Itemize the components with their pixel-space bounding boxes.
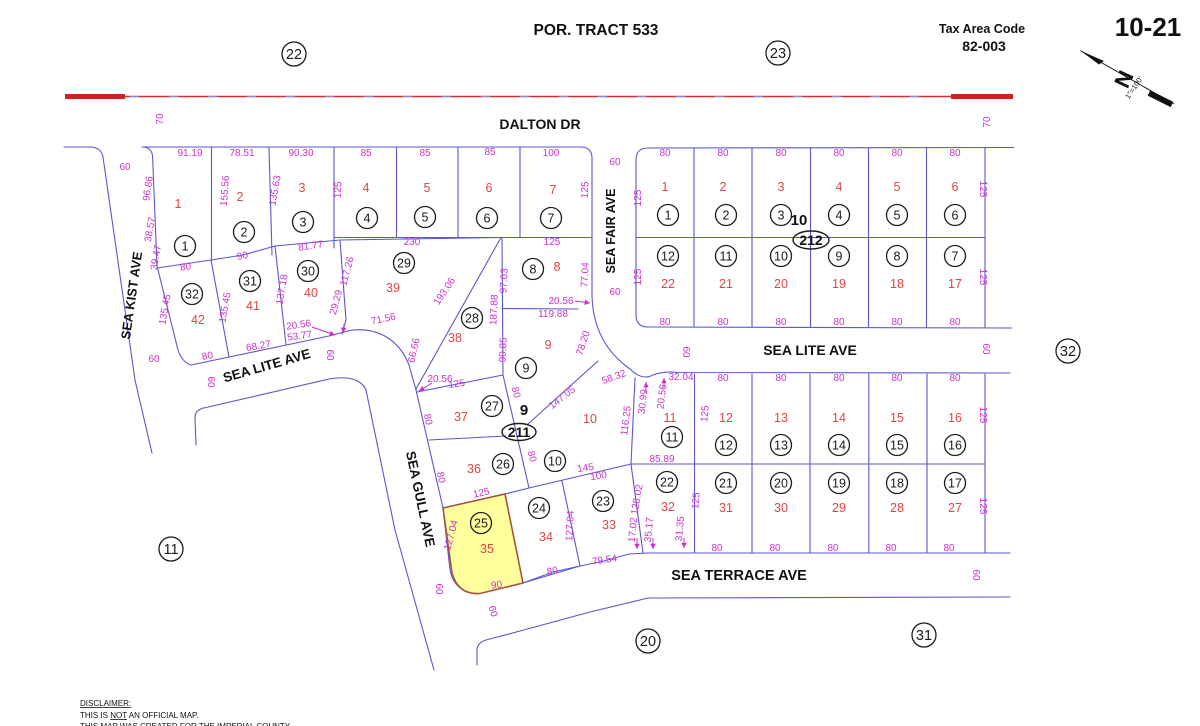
svg-text:10: 10 <box>583 412 597 426</box>
svg-text:16: 16 <box>948 411 962 425</box>
svg-text:20: 20 <box>774 477 788 491</box>
svg-text:125: 125 <box>690 492 702 510</box>
svg-text:31.35: 31.35 <box>674 515 687 541</box>
svg-text:60: 60 <box>148 354 160 365</box>
svg-text:125: 125 <box>977 498 988 515</box>
svg-text:33: 33 <box>602 518 616 532</box>
svg-text:11: 11 <box>664 411 677 425</box>
svg-text:80: 80 <box>885 543 897 554</box>
svg-text:60: 60 <box>119 162 131 173</box>
svg-text:60: 60 <box>680 346 691 358</box>
svg-text:30: 30 <box>774 501 788 515</box>
svg-text:3: 3 <box>778 180 785 194</box>
svg-text:POR. TRACT 533: POR. TRACT 533 <box>534 22 659 39</box>
svg-text:212: 212 <box>799 232 823 248</box>
svg-text:80: 80 <box>833 373 845 384</box>
svg-text:38: 38 <box>448 331 462 345</box>
svg-text:9: 9 <box>523 362 530 376</box>
svg-text:10: 10 <box>548 455 562 469</box>
svg-text:80: 80 <box>711 543 723 554</box>
svg-text:32: 32 <box>661 500 675 514</box>
svg-text:60: 60 <box>609 287 621 298</box>
svg-text:9: 9 <box>836 250 843 264</box>
svg-text:13: 13 <box>774 439 788 453</box>
svg-text:80: 80 <box>833 148 845 159</box>
svg-text:97.03: 97.03 <box>498 268 510 294</box>
svg-text:13: 13 <box>774 411 788 425</box>
svg-text:34: 34 <box>539 530 553 544</box>
svg-text:125: 125 <box>633 189 644 206</box>
svg-text:5: 5 <box>422 211 429 225</box>
svg-text:80: 80 <box>659 317 671 328</box>
svg-text:35: 35 <box>480 542 494 556</box>
svg-text:23: 23 <box>770 46 786 62</box>
svg-text:Tax Area Code: Tax Area Code <box>939 22 1025 36</box>
svg-text:1: 1 <box>175 197 182 211</box>
svg-text:17.02: 17.02 <box>627 516 640 542</box>
svg-text:4: 4 <box>363 181 370 195</box>
svg-text:60: 60 <box>980 343 991 355</box>
svg-text:4: 4 <box>836 209 843 223</box>
svg-text:11: 11 <box>163 542 178 558</box>
svg-text:80: 80 <box>891 317 903 328</box>
svg-text:37: 37 <box>454 410 468 424</box>
svg-text:60: 60 <box>970 569 981 581</box>
svg-text:80: 80 <box>769 543 781 554</box>
svg-text:211: 211 <box>508 424 531 440</box>
svg-text:7: 7 <box>952 250 959 264</box>
svg-text:1: 1 <box>665 209 672 223</box>
svg-text:80: 80 <box>949 373 961 384</box>
svg-text:DISCLAIMER:: DISCLAIMER: <box>80 699 131 708</box>
svg-text:DALTON DR: DALTON DR <box>499 116 580 132</box>
svg-text:230: 230 <box>404 237 421 248</box>
svg-text:10-21: 10-21 <box>1115 12 1182 42</box>
svg-text:29: 29 <box>397 257 411 271</box>
svg-text:80: 80 <box>717 148 729 159</box>
svg-text:85.89: 85.89 <box>649 454 674 465</box>
svg-text:2: 2 <box>241 226 248 240</box>
svg-text:70: 70 <box>982 116 993 128</box>
svg-text:22: 22 <box>286 47 302 63</box>
svg-text:12: 12 <box>719 439 733 453</box>
svg-text:32.04: 32.04 <box>668 372 693 383</box>
svg-text:7: 7 <box>550 183 557 197</box>
svg-text:80: 80 <box>827 543 839 554</box>
svg-text:15: 15 <box>890 411 904 425</box>
svg-text:8: 8 <box>530 263 537 277</box>
svg-text:155.56: 155.56 <box>219 175 232 207</box>
svg-text:20.56: 20.56 <box>548 296 573 307</box>
svg-text:125: 125 <box>699 405 711 423</box>
svg-text:78.51: 78.51 <box>229 148 254 159</box>
svg-text:2: 2 <box>720 180 727 194</box>
svg-text:11: 11 <box>666 431 679 445</box>
svg-text:80: 80 <box>891 148 903 159</box>
svg-text:THIS IS NOT AN OFFICIAL MAP.: THIS IS NOT AN OFFICIAL MAP. <box>80 711 199 720</box>
svg-text:6: 6 <box>952 180 959 194</box>
svg-text:60: 60 <box>433 583 444 595</box>
svg-text:39: 39 <box>386 281 400 295</box>
svg-text:31: 31 <box>916 628 932 644</box>
svg-text:187.88: 187.88 <box>488 294 501 326</box>
svg-text:60: 60 <box>324 349 335 361</box>
svg-text:80: 80 <box>833 317 845 328</box>
svg-text:12: 12 <box>719 411 733 425</box>
svg-text:80: 80 <box>949 148 961 159</box>
svg-text:125: 125 <box>977 181 988 198</box>
svg-text:90.30: 90.30 <box>288 148 313 159</box>
svg-text:28: 28 <box>465 312 479 326</box>
svg-text:91.19: 91.19 <box>177 148 202 159</box>
svg-text:25: 25 <box>474 517 488 531</box>
svg-text:14: 14 <box>832 411 846 425</box>
svg-text:4: 4 <box>364 212 371 226</box>
svg-text:19: 19 <box>832 277 846 291</box>
svg-text:125: 125 <box>580 181 592 199</box>
svg-text:80: 80 <box>775 148 787 159</box>
svg-text:32: 32 <box>185 288 199 302</box>
svg-text:36: 36 <box>467 462 481 476</box>
svg-text:12: 12 <box>661 250 675 264</box>
svg-text:119.88: 119.88 <box>538 309 568 320</box>
svg-text:17: 17 <box>948 477 962 491</box>
svg-text:42: 42 <box>191 313 205 327</box>
svg-text:85: 85 <box>484 147 496 158</box>
svg-text:SEA TERRACE AVE: SEA TERRACE AVE <box>671 568 807 584</box>
svg-text:125: 125 <box>977 269 988 286</box>
svg-text:127.04: 127.04 <box>564 510 577 542</box>
svg-text:80: 80 <box>775 317 787 328</box>
svg-text:80: 80 <box>659 148 671 159</box>
svg-text:20: 20 <box>774 277 788 291</box>
svg-text:18: 18 <box>890 277 904 291</box>
svg-text:125: 125 <box>977 407 988 424</box>
svg-text:22: 22 <box>661 277 675 291</box>
svg-text:8: 8 <box>894 250 901 264</box>
svg-text:6: 6 <box>486 181 493 195</box>
svg-text:80: 80 <box>775 373 787 384</box>
svg-text:35.17: 35.17 <box>643 516 656 542</box>
svg-text:85: 85 <box>419 148 431 159</box>
svg-text:4: 4 <box>836 180 843 194</box>
svg-text:2: 2 <box>723 209 730 223</box>
svg-text:90: 90 <box>490 579 503 592</box>
svg-text:5: 5 <box>424 181 431 195</box>
svg-text:9: 9 <box>520 402 528 419</box>
svg-text:85: 85 <box>360 148 372 159</box>
svg-text:SEA LITE AVE: SEA LITE AVE <box>763 342 857 358</box>
svg-text:14: 14 <box>832 439 846 453</box>
svg-text:90.85: 90.85 <box>497 337 509 363</box>
svg-text:27: 27 <box>485 400 499 414</box>
svg-text:SEA FAIR AVE: SEA FAIR AVE <box>604 189 618 274</box>
svg-text:125: 125 <box>633 268 644 285</box>
svg-text:11: 11 <box>720 250 733 264</box>
svg-text:31: 31 <box>719 501 733 515</box>
svg-text:100: 100 <box>543 148 560 159</box>
svg-text:70: 70 <box>155 113 166 125</box>
svg-text:19: 19 <box>832 477 846 491</box>
svg-text:82-003: 82-003 <box>962 38 1006 54</box>
svg-text:5: 5 <box>894 209 901 223</box>
svg-text:10: 10 <box>774 250 788 264</box>
svg-text:60: 60 <box>205 376 216 388</box>
svg-text:24: 24 <box>532 502 546 516</box>
svg-text:THIS MAP WAS CREATED FOR THE I: THIS MAP WAS CREATED FOR THE IMPERIAL CO… <box>80 722 291 726</box>
svg-text:29: 29 <box>832 501 846 515</box>
svg-text:80: 80 <box>943 543 955 554</box>
svg-text:8: 8 <box>554 260 561 274</box>
svg-text:3: 3 <box>778 209 785 223</box>
svg-text:3: 3 <box>300 216 307 230</box>
svg-text:80: 80 <box>717 317 729 328</box>
svg-text:80: 80 <box>949 317 961 328</box>
svg-text:31: 31 <box>243 275 257 289</box>
svg-text:60: 60 <box>609 157 621 168</box>
svg-text:5: 5 <box>894 180 901 194</box>
svg-text:80: 80 <box>891 373 903 384</box>
svg-text:1: 1 <box>662 180 669 194</box>
svg-text:80: 80 <box>179 261 192 274</box>
svg-text:23: 23 <box>596 495 610 509</box>
svg-text:16: 16 <box>948 439 962 453</box>
svg-text:22: 22 <box>660 476 674 490</box>
svg-text:2: 2 <box>237 190 244 204</box>
svg-text:40: 40 <box>304 286 318 300</box>
svg-text:125: 125 <box>544 237 561 248</box>
svg-text:27: 27 <box>948 501 962 515</box>
svg-text:10: 10 <box>791 212 808 229</box>
svg-text:3: 3 <box>299 181 306 195</box>
svg-text:28: 28 <box>890 501 904 515</box>
svg-text:41: 41 <box>246 299 260 313</box>
svg-text:9: 9 <box>545 338 552 352</box>
svg-text:7: 7 <box>548 212 555 226</box>
svg-text:1: 1 <box>182 240 189 254</box>
svg-text:6: 6 <box>952 209 959 223</box>
svg-text:26: 26 <box>496 458 510 472</box>
svg-text:18: 18 <box>890 477 904 491</box>
svg-text:21: 21 <box>719 277 733 291</box>
svg-text:30: 30 <box>301 265 315 279</box>
svg-text:77.04: 77.04 <box>579 262 591 288</box>
svg-text:80: 80 <box>717 373 729 384</box>
svg-text:125: 125 <box>333 181 345 199</box>
svg-text:15: 15 <box>890 439 904 453</box>
svg-text:17: 17 <box>948 277 962 291</box>
svg-text:6: 6 <box>484 212 491 226</box>
svg-text:21: 21 <box>719 477 733 491</box>
svg-text:20: 20 <box>640 634 656 650</box>
svg-text:32: 32 <box>1060 344 1076 360</box>
